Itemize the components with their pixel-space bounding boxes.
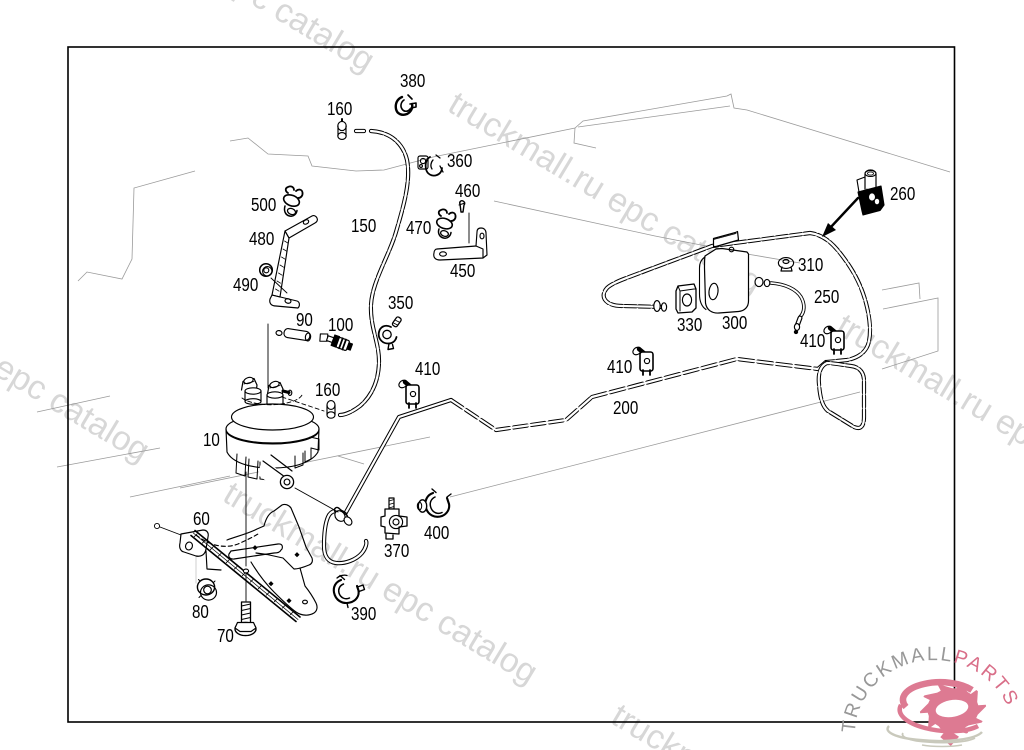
svg-text:80: 80: [192, 602, 209, 623]
svg-text:90: 90: [296, 310, 313, 331]
svg-text:450: 450: [450, 261, 475, 282]
svg-text:490: 490: [233, 275, 258, 296]
svg-text:60: 60: [193, 509, 210, 530]
svg-text:truckmall.ru epc catalog: truckmall.ru epc catalog: [0, 252, 156, 469]
svg-text:160: 160: [315, 380, 340, 401]
svg-text:400: 400: [424, 523, 449, 544]
svg-text:260: 260: [890, 184, 915, 205]
svg-text:10: 10: [203, 430, 220, 451]
svg-text:500: 500: [251, 195, 276, 216]
svg-text:390: 390: [351, 604, 376, 625]
svg-text:truckmall.ru epc catalog: truckmall.ru epc catalog: [54, 0, 381, 80]
svg-text:250: 250: [814, 287, 839, 308]
svg-text:410: 410: [800, 331, 825, 352]
svg-text:200: 200: [613, 398, 638, 419]
svg-text:470: 470: [406, 218, 431, 239]
svg-text:360: 360: [447, 151, 472, 172]
svg-text:truckmall.ru epc catalog: truckmall.ru epc catalog: [605, 696, 932, 750]
svg-text:380: 380: [400, 71, 425, 92]
svg-text:370: 370: [384, 541, 409, 562]
svg-text:410: 410: [415, 359, 440, 380]
svg-text:300: 300: [722, 313, 747, 334]
svg-text:350: 350: [388, 293, 413, 314]
svg-text:100: 100: [328, 315, 353, 336]
svg-text:310: 310: [798, 255, 823, 276]
svg-text:150: 150: [351, 216, 376, 237]
svg-text:70: 70: [217, 626, 234, 647]
svg-text:460: 460: [455, 181, 480, 202]
svg-text:330: 330: [677, 315, 702, 336]
svg-text:410: 410: [607, 357, 632, 378]
svg-text:truckmall.ru epc catalog: truckmall.ru epc catalog: [830, 306, 1024, 523]
svg-text:480: 480: [249, 229, 274, 250]
svg-text:160: 160: [327, 99, 352, 120]
